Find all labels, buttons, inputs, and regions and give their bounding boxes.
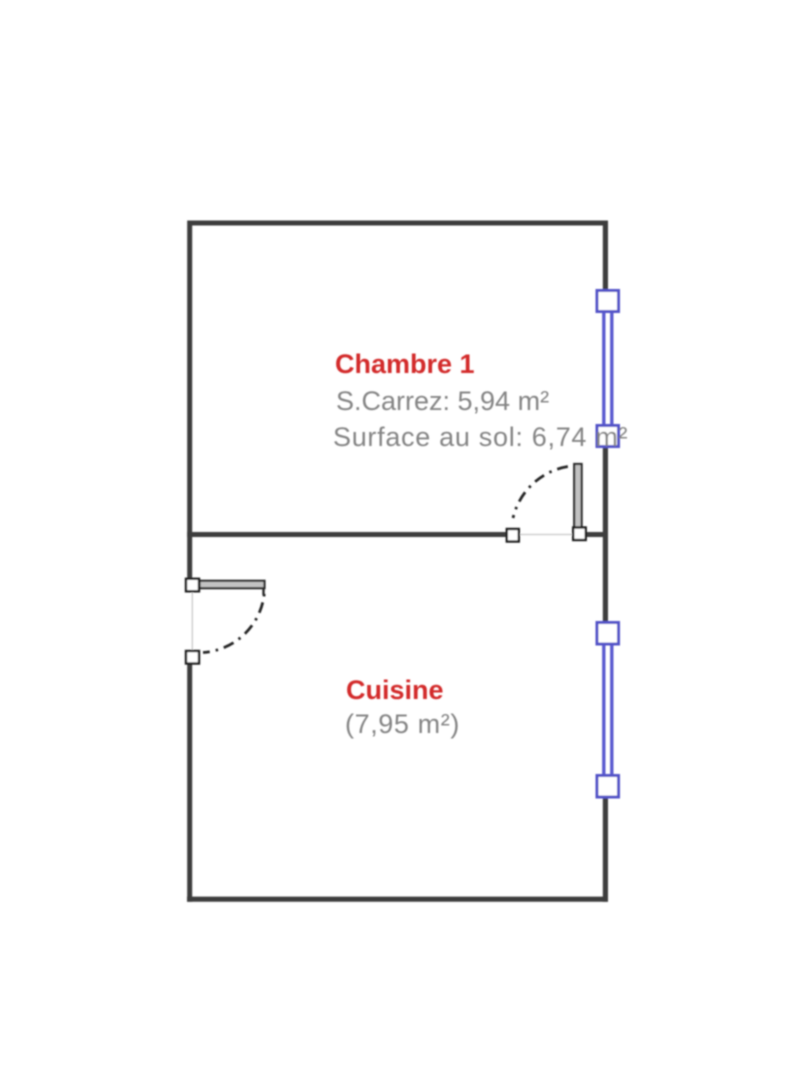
svg-text:Surface au sol: 6,74 m²: Surface au sol: 6,74 m² xyxy=(333,422,628,452)
svg-text:(7,95 m²): (7,95 m²) xyxy=(345,709,460,739)
svg-text:Cuisine: Cuisine xyxy=(346,675,444,705)
svg-text:S.Carrez: 5,94 m²: S.Carrez: 5,94 m² xyxy=(336,386,549,416)
svg-text:Chambre 1: Chambre 1 xyxy=(335,349,475,379)
